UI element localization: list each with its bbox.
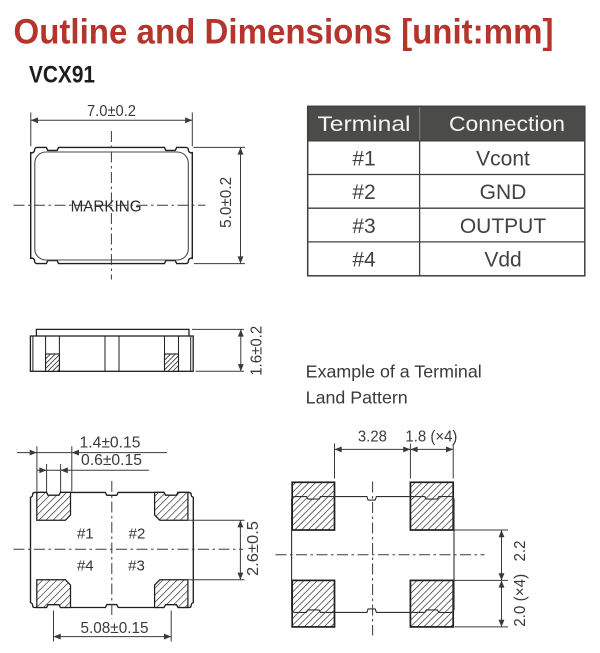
svg-text:5.08±0.15: 5.08±0.15 bbox=[81, 620, 149, 637]
svg-text:#4: #4 bbox=[352, 249, 376, 272]
svg-text:OUTPUT: OUTPUT bbox=[460, 215, 547, 238]
svg-text:2.6±0.5: 2.6±0.5 bbox=[245, 521, 262, 576]
svg-text:MARKING: MARKING bbox=[71, 198, 142, 215]
svg-text:3.28: 3.28 bbox=[358, 429, 387, 446]
svg-text:#1: #1 bbox=[77, 526, 94, 543]
svg-text:#1: #1 bbox=[352, 148, 375, 171]
svg-text:Example of a Terminal: Example of a Terminal bbox=[306, 361, 482, 381]
svg-text:Connection: Connection bbox=[449, 112, 565, 136]
svg-text:1.8 (×4): 1.8 (×4) bbox=[405, 429, 457, 446]
svg-text:GND: GND bbox=[480, 181, 527, 204]
svg-text:#2: #2 bbox=[352, 181, 375, 204]
svg-text:Terminal: Terminal bbox=[318, 112, 411, 136]
svg-text:#3: #3 bbox=[352, 215, 375, 238]
svg-text:Outline and Dimensions [unit:m: Outline and Dimensions [unit:mm] bbox=[14, 12, 554, 51]
svg-text:VCX91: VCX91 bbox=[29, 62, 95, 89]
svg-text:7.0±0.2: 7.0±0.2 bbox=[87, 103, 136, 120]
svg-text:#2: #2 bbox=[129, 526, 146, 543]
svg-text:#3: #3 bbox=[128, 557, 145, 574]
svg-text:Land Pattern: Land Pattern bbox=[306, 387, 408, 407]
svg-text:#4: #4 bbox=[77, 557, 94, 574]
svg-text:1.6±0.2: 1.6±0.2 bbox=[249, 326, 266, 376]
svg-text:2.0 (×4): 2.0 (×4) bbox=[512, 574, 529, 627]
svg-text:5.0±0.2: 5.0±0.2 bbox=[218, 177, 235, 228]
svg-text:0.6±0.15: 0.6±0.15 bbox=[81, 452, 142, 469]
svg-text:1.4±0.15: 1.4±0.15 bbox=[80, 434, 141, 451]
svg-text:2.2: 2.2 bbox=[512, 541, 529, 562]
svg-text:Vcont: Vcont bbox=[476, 148, 530, 171]
svg-text:Vdd: Vdd bbox=[484, 249, 521, 272]
